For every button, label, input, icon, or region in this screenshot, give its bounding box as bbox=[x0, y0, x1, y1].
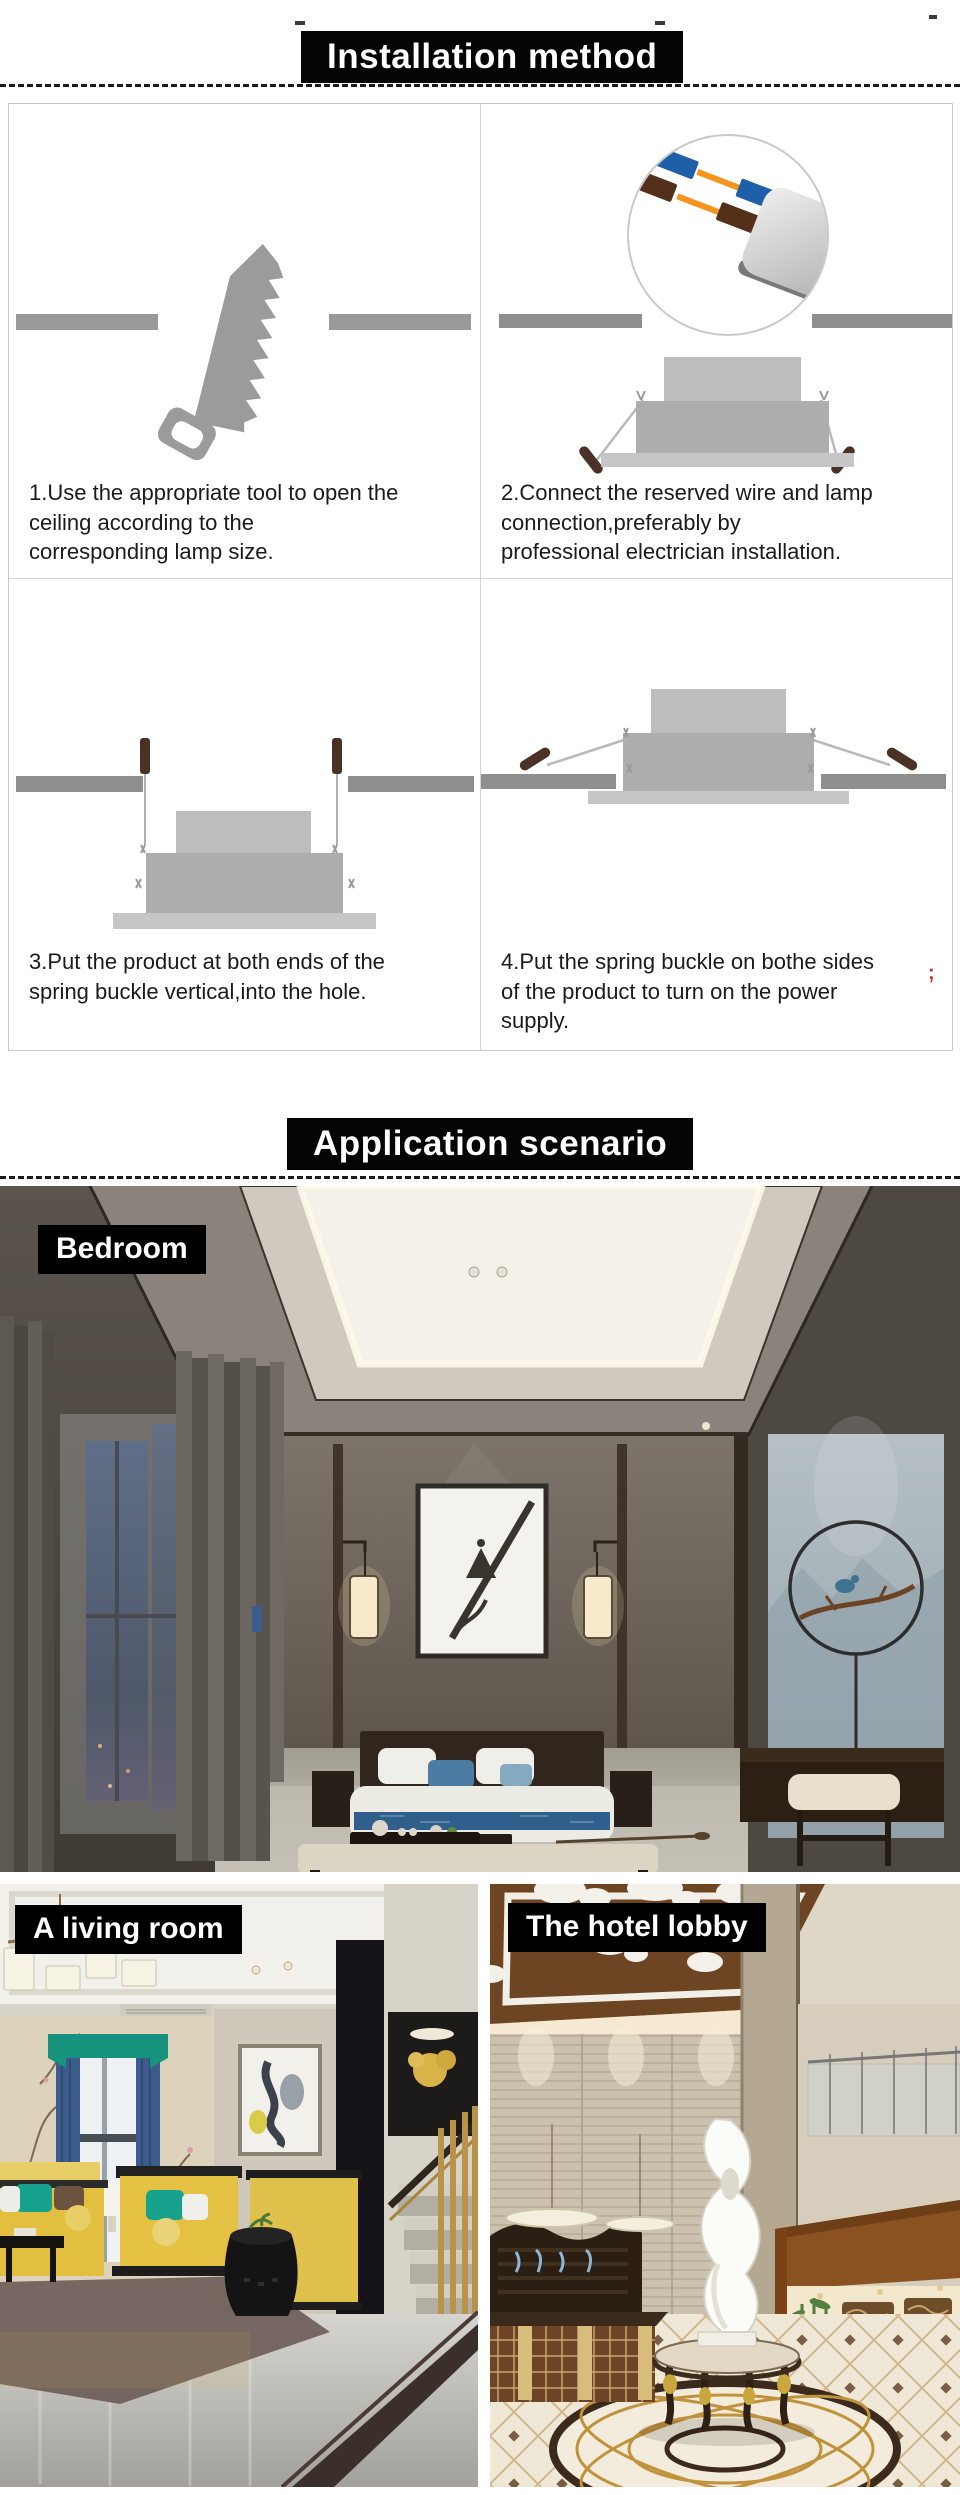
spring-pin-icon bbox=[332, 738, 342, 774]
step-4-caption: 4.Put the spring buckle on bothe sides o… bbox=[501, 947, 945, 1036]
step-1-caption: 1.Use the appropriate tool to open the c… bbox=[29, 478, 473, 567]
installation-method-title: Installation method bbox=[301, 31, 683, 83]
ceiling-bar-left bbox=[481, 774, 616, 789]
ceiling-bar-right bbox=[821, 774, 946, 789]
application-scenario-title: Application scenario bbox=[287, 1118, 693, 1170]
downlight-icon bbox=[577, 357, 857, 476]
stool bbox=[788, 1774, 900, 1810]
ceiling-bar-right bbox=[348, 776, 474, 792]
spring-pin-icon bbox=[885, 746, 919, 772]
crop-tick-mark bbox=[655, 21, 665, 25]
hotel-lobby-photo bbox=[490, 1884, 960, 2487]
stray-red-mark: ; bbox=[928, 962, 935, 985]
ceiling-downlight bbox=[469, 1267, 479, 1277]
installation-steps-grid: 1.Use the appropriate tool to open the c… bbox=[8, 103, 953, 1051]
saw-icon bbox=[151, 230, 306, 475]
living-room-photo bbox=[0, 1884, 478, 2487]
bedroom-label: Bedroom bbox=[38, 1225, 206, 1274]
installation-step-3: 3.Put the product at both ends of the sp… bbox=[9, 579, 481, 1050]
ceiling-bar-right bbox=[329, 314, 471, 330]
step-3-caption: 3.Put the product at both ends of the sp… bbox=[29, 947, 473, 1006]
downlight-icon bbox=[588, 689, 849, 804]
bedroom-photo bbox=[0, 1186, 960, 1872]
spring-pin-icon bbox=[140, 738, 150, 774]
installation-step-2: 2.Connect the reserved wire and lamp con… bbox=[481, 104, 952, 579]
hotel-lobby-label: The hotel lobby bbox=[508, 1903, 766, 1952]
ceiling-tray bbox=[300, 1186, 762, 1364]
living-room-label: A living room bbox=[15, 1905, 242, 1954]
crop-tick-mark bbox=[295, 21, 305, 25]
reception-desk bbox=[490, 2312, 668, 2402]
spring-pin-icon bbox=[518, 746, 552, 772]
ceiling-bar-right bbox=[812, 314, 952, 328]
ceiling-bar-left bbox=[16, 776, 143, 792]
installation-step-4: 4.Put the spring buckle on bothe sides o… bbox=[481, 579, 952, 1050]
installation-step-1: 1.Use the appropriate tool to open the c… bbox=[9, 104, 481, 579]
crop-tick-mark bbox=[929, 15, 937, 19]
bed bbox=[312, 1731, 652, 1846]
ceiling-bar-left bbox=[499, 314, 642, 328]
product-description-page: Installation method 1.Use the appropriat… bbox=[0, 0, 960, 2495]
console-desk bbox=[740, 1748, 944, 1762]
step-2-caption: 2.Connect the reserved wire and lamp con… bbox=[501, 478, 945, 567]
header-dashed-divider bbox=[0, 84, 960, 87]
sheer-curtain bbox=[60, 1414, 190, 1834]
ceiling-bar-left bbox=[16, 314, 158, 330]
ceiling-downlight bbox=[497, 1267, 507, 1277]
abstract-sculpture bbox=[698, 2119, 760, 2346]
scenario-dashed-divider bbox=[0, 1176, 960, 1179]
